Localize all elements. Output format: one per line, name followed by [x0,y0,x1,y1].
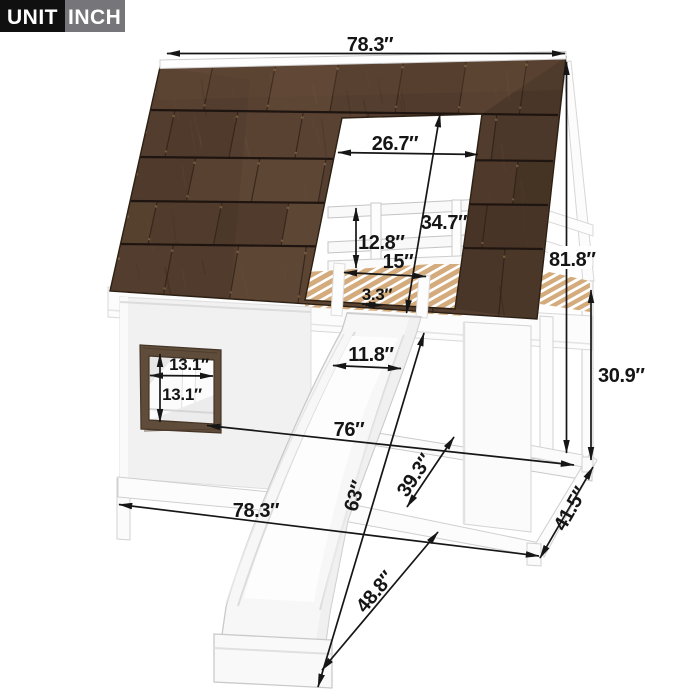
svg-text:UNIT: UNIT [7,6,58,29]
svg-text:INCH: INCH [68,6,121,29]
svg-text:78.3″: 78.3″ [233,500,280,522]
svg-text:78.3″: 78.3″ [347,34,394,56]
svg-text:81.8″: 81.8″ [549,249,596,271]
svg-text:76″: 76″ [334,419,365,441]
svg-text:3.3″: 3.3″ [362,285,393,304]
svg-text:11.8″: 11.8″ [348,344,394,366]
svg-text:13.1″: 13.1″ [169,355,209,374]
svg-text:15″: 15″ [383,251,414,273]
svg-text:26.7″: 26.7″ [372,133,419,155]
svg-text:30.9″: 30.9″ [598,365,645,387]
svg-text:13.1″: 13.1″ [162,385,202,404]
svg-text:34.7″: 34.7″ [421,212,468,234]
